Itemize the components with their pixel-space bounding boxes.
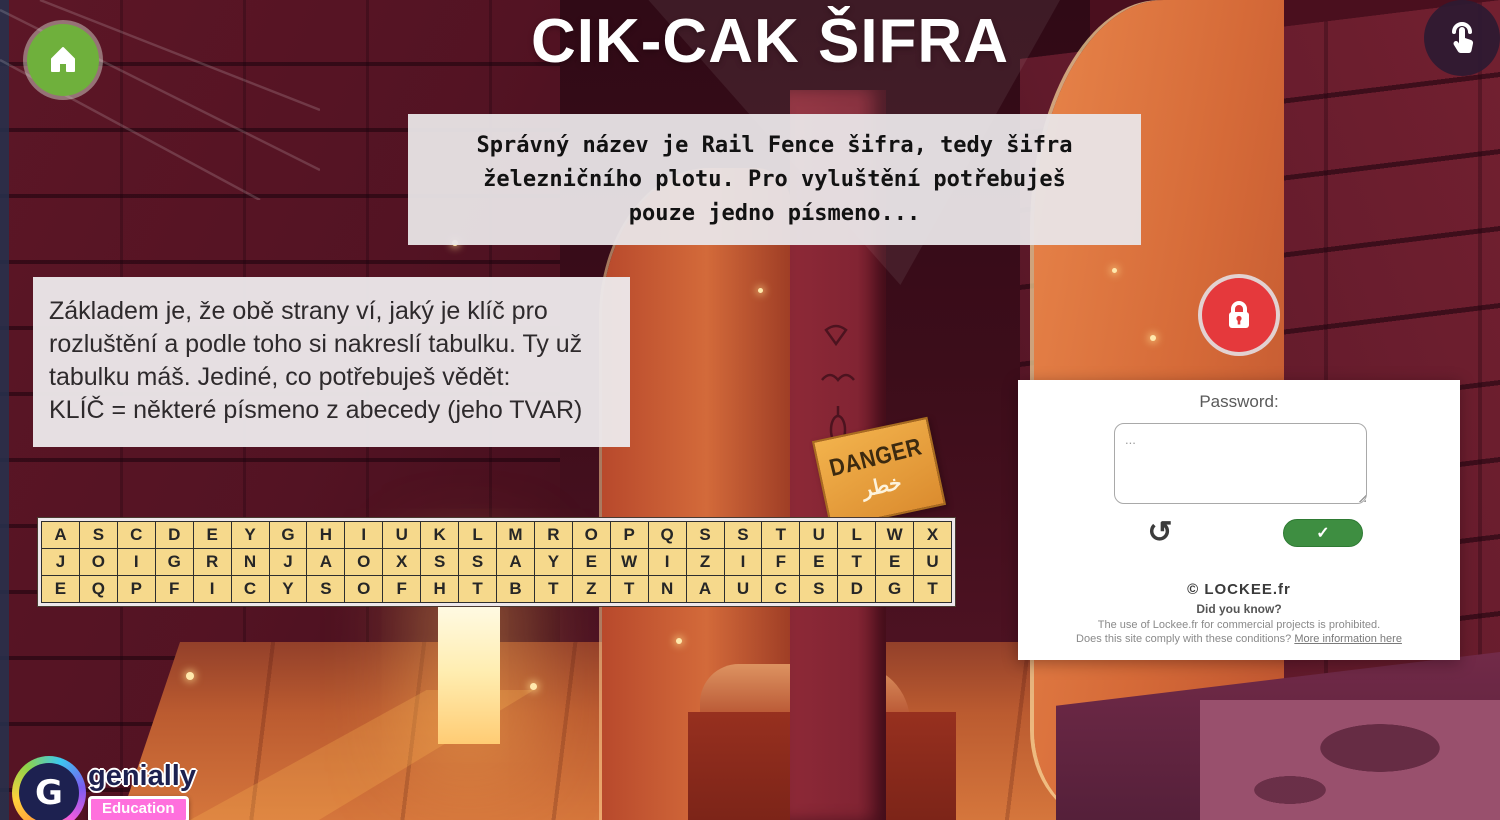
cipher-cell: T [459,576,497,603]
cipher-cell: O [345,549,383,576]
cipher-cell: N [649,576,687,603]
cipher-table-grid: ASCDEYGHIUKLMROPQSSTULWXJOIGRNJAOXSSAYEW… [41,521,952,603]
cipher-cell: S [80,522,118,549]
cipher-cell: O [573,522,611,549]
cipher-cell: J [270,549,308,576]
cipher-cell: I [725,549,763,576]
cipher-cell: O [80,549,118,576]
cipher-cell: E [42,576,80,603]
cipher-hint-box: Správný název je Rail Fence šifra, tedy … [408,114,1141,245]
cipher-explanation-box: Základem je, že obě strany ví, jaký je k… [33,277,630,447]
cipher-cell: A [497,549,535,576]
glowing-doorway [438,586,500,744]
cipher-cell: F [762,549,800,576]
cipher-cell: Q [649,522,687,549]
cipher-cell: A [42,522,80,549]
padlock-icon [1222,298,1256,332]
home-button[interactable] [27,24,99,96]
more-information-link[interactable]: More information here [1294,633,1402,645]
password-panel: Password: ↺ ✓ © LOCKEE.fr Did you know? … [1018,380,1460,660]
sparkle-dot [186,672,194,680]
escape-room-slide: DANGER خطر CIK-CAK ŠIFRA Správný název j… [0,0,1500,820]
cipher-cell: T [535,576,573,603]
cipher-cell: S [725,522,763,549]
cipher-cell: E [876,549,914,576]
lockee-question-label: Does this site comply with these conditi… [1076,633,1294,645]
cipher-cell: I [345,522,383,549]
cipher-cell: S [459,549,497,576]
education-badge: Education [88,796,189,820]
refresh-button[interactable]: ↺ [1140,513,1180,553]
sparkle-dot [676,638,682,644]
cipher-cell: G [156,549,194,576]
cipher-cell: M [497,522,535,549]
cipher-cell: R [194,549,232,576]
cipher-cell: H [307,522,345,549]
cipher-cell: I [118,549,156,576]
cipher-cell: F [383,576,421,603]
lockee-notice-text: The use of Lockee.fr for commercial proj… [1018,619,1460,631]
cipher-cell: S [421,549,459,576]
cipher-cell: T [611,576,649,603]
cipher-cell: F [156,576,194,603]
sparkle-dot [758,288,763,293]
hand-tap-icon [1442,18,1482,58]
lock-badge-button[interactable] [1202,278,1276,352]
cipher-cell: H [421,576,459,603]
cipher-cell: C [232,576,270,603]
cipher-cell: I [649,549,687,576]
cipher-cell: T [838,549,876,576]
cipher-cell: K [421,522,459,549]
cipher-cell: A [687,576,725,603]
cipher-cell: B [497,576,535,603]
lockee-question-text: Does this site comply with these conditi… [1018,633,1460,645]
cipher-cell: Y [535,549,573,576]
cipher-cell: S [687,522,725,549]
cipher-cell: Q [80,576,118,603]
cipher-cell: L [459,522,497,549]
home-icon [46,43,80,77]
genially-logo-button[interactable]: G [12,756,86,820]
left-edge-strip [0,0,9,820]
genially-wordmark: genially [88,760,196,793]
cipher-cell: I [194,576,232,603]
cipher-cell: U [800,522,838,549]
cipher-cell: Z [573,576,611,603]
password-label: Password: [1018,392,1460,412]
cipher-cell: P [611,522,649,549]
sparkle-dot [1150,335,1156,341]
cipher-cell: R [535,522,573,549]
cipher-cell: X [914,522,952,549]
submit-check-button[interactable]: ✓ [1283,519,1363,547]
cipher-cell: D [156,522,194,549]
cipher-cell: T [762,522,800,549]
cipher-cell: U [383,522,421,549]
cipher-cell: D [838,576,876,603]
cipher-cell: C [762,576,800,603]
cipher-cell: T [914,576,952,603]
password-input[interactable] [1114,423,1367,504]
cipher-cell: U [914,549,952,576]
genially-g-icon: G [19,763,79,820]
cipher-cell: X [383,549,421,576]
cipher-cell: C [118,522,156,549]
did-you-know-text: Did you know? [1018,602,1460,616]
cipher-cell: O [345,576,383,603]
cipher-cell: E [194,522,232,549]
cipher-cell: Y [270,576,308,603]
cipher-cell: W [876,522,914,549]
cipher-cell: L [838,522,876,549]
cipher-cell: E [573,549,611,576]
sparkle-dot [1112,268,1117,273]
cipher-cell: G [876,576,914,603]
floor-right-shadow [1200,700,1500,820]
cipher-cell: W [611,549,649,576]
lockee-brand: © LOCKEE.fr [1018,581,1460,598]
cipher-cell: N [232,549,270,576]
page-title: CIK-CAK ŠIFRA [0,6,1500,77]
cipher-cell: J [42,549,80,576]
cipher-cell: E [800,549,838,576]
sparkle-dot [530,683,537,690]
cipher-cell: P [118,576,156,603]
cipher-cell: S [307,576,345,603]
tap-interaction-button[interactable] [1424,0,1500,76]
cipher-table: ASCDEYGHIUKLMROPQSSTULWXJOIGRNJAOXSSAYEW… [38,518,955,606]
cipher-cell: G [270,522,308,549]
cipher-cell: A [307,549,345,576]
cipher-cell: U [725,576,763,603]
cipher-cell: S [800,576,838,603]
cipher-cell: Y [232,522,270,549]
cipher-cell: Z [687,549,725,576]
